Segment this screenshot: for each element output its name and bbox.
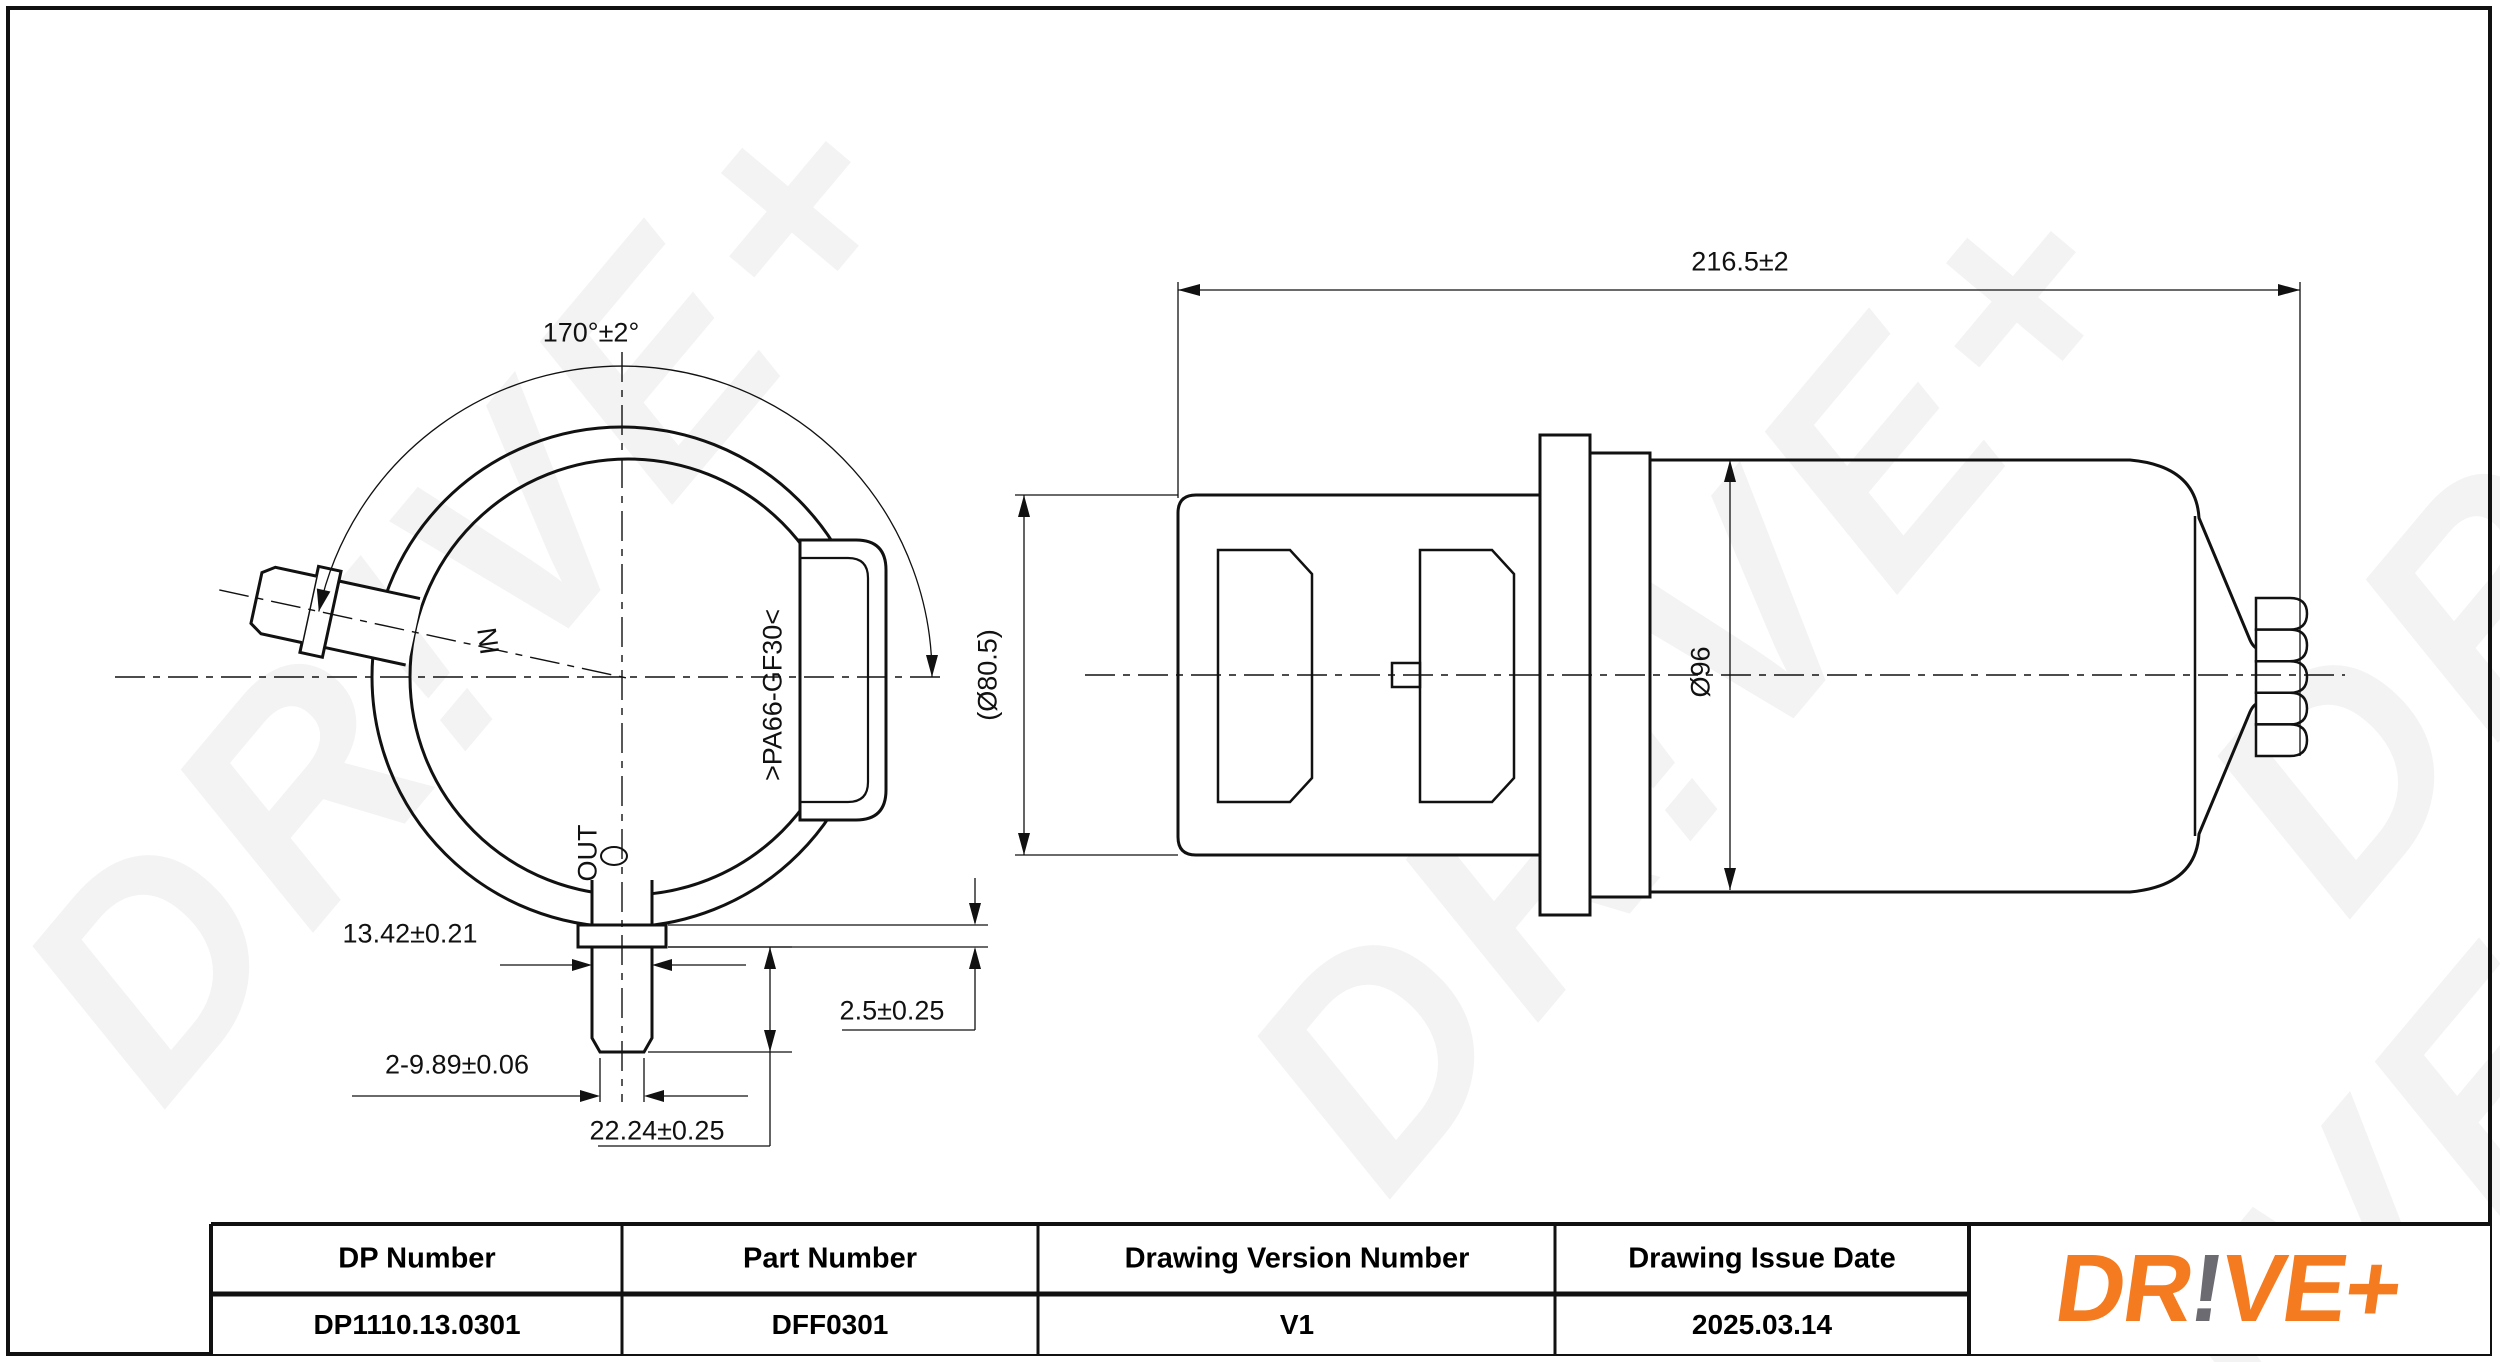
side-bracket — [800, 540, 886, 820]
in-port-label: IN — [472, 625, 506, 656]
dim-ports-bore-label: 2-9.89±0.06 — [385, 1050, 529, 1081]
drive-plus-logo: DR!VE+ — [2049, 1234, 2407, 1344]
part-number-header: Part Number — [743, 1243, 917, 1276]
outlet-detail-hole — [601, 847, 627, 865]
dim-port-outer-label: 13.42±0.21 — [343, 919, 478, 950]
out-port-label: OUT — [573, 825, 604, 882]
drawing-canvas — [0, 0, 2500, 1362]
issue-date-value: 2025.03.14 — [1692, 1309, 1832, 1341]
logo-part1: DR — [2049, 1235, 2199, 1342]
canister-body — [1650, 460, 2260, 892]
dp-number-value: DP1110.13.0301 — [313, 1309, 520, 1341]
right-view — [1015, 282, 2345, 915]
dim-port-length-label: 22.24±0.25 — [590, 1116, 725, 1147]
dim-port-outer-lines — [500, 959, 746, 971]
in-port — [210, 547, 641, 722]
left-view — [115, 352, 988, 1146]
material-label: >PA66-GF30< — [758, 609, 789, 781]
dim-collar-label: 2.5±0.25 — [840, 996, 945, 1027]
dim-body-diameter-label: Ø96 — [1686, 646, 1717, 697]
logo-part2: VE+ — [2214, 1235, 2407, 1342]
part-number-value: DFF0301 — [772, 1309, 889, 1341]
angle-dimension-label: 170°±2° — [543, 318, 639, 349]
dim-head-diameter-label: (Ø80.5) — [973, 629, 1004, 721]
drawing-version-header: Drawing Version Number — [1125, 1243, 1470, 1276]
dim-overall-label: 216.5±2 — [1691, 247, 1788, 278]
drawing-sheet: DR!VE+ DR!VE+ DR!VE+ DR!VE+ — [0, 0, 2500, 1362]
issue-date-header: Drawing Issue Date — [1628, 1243, 1896, 1276]
dp-number-header: DP Number — [338, 1243, 495, 1276]
drawing-version-value: V1 — [1280, 1309, 1314, 1341]
